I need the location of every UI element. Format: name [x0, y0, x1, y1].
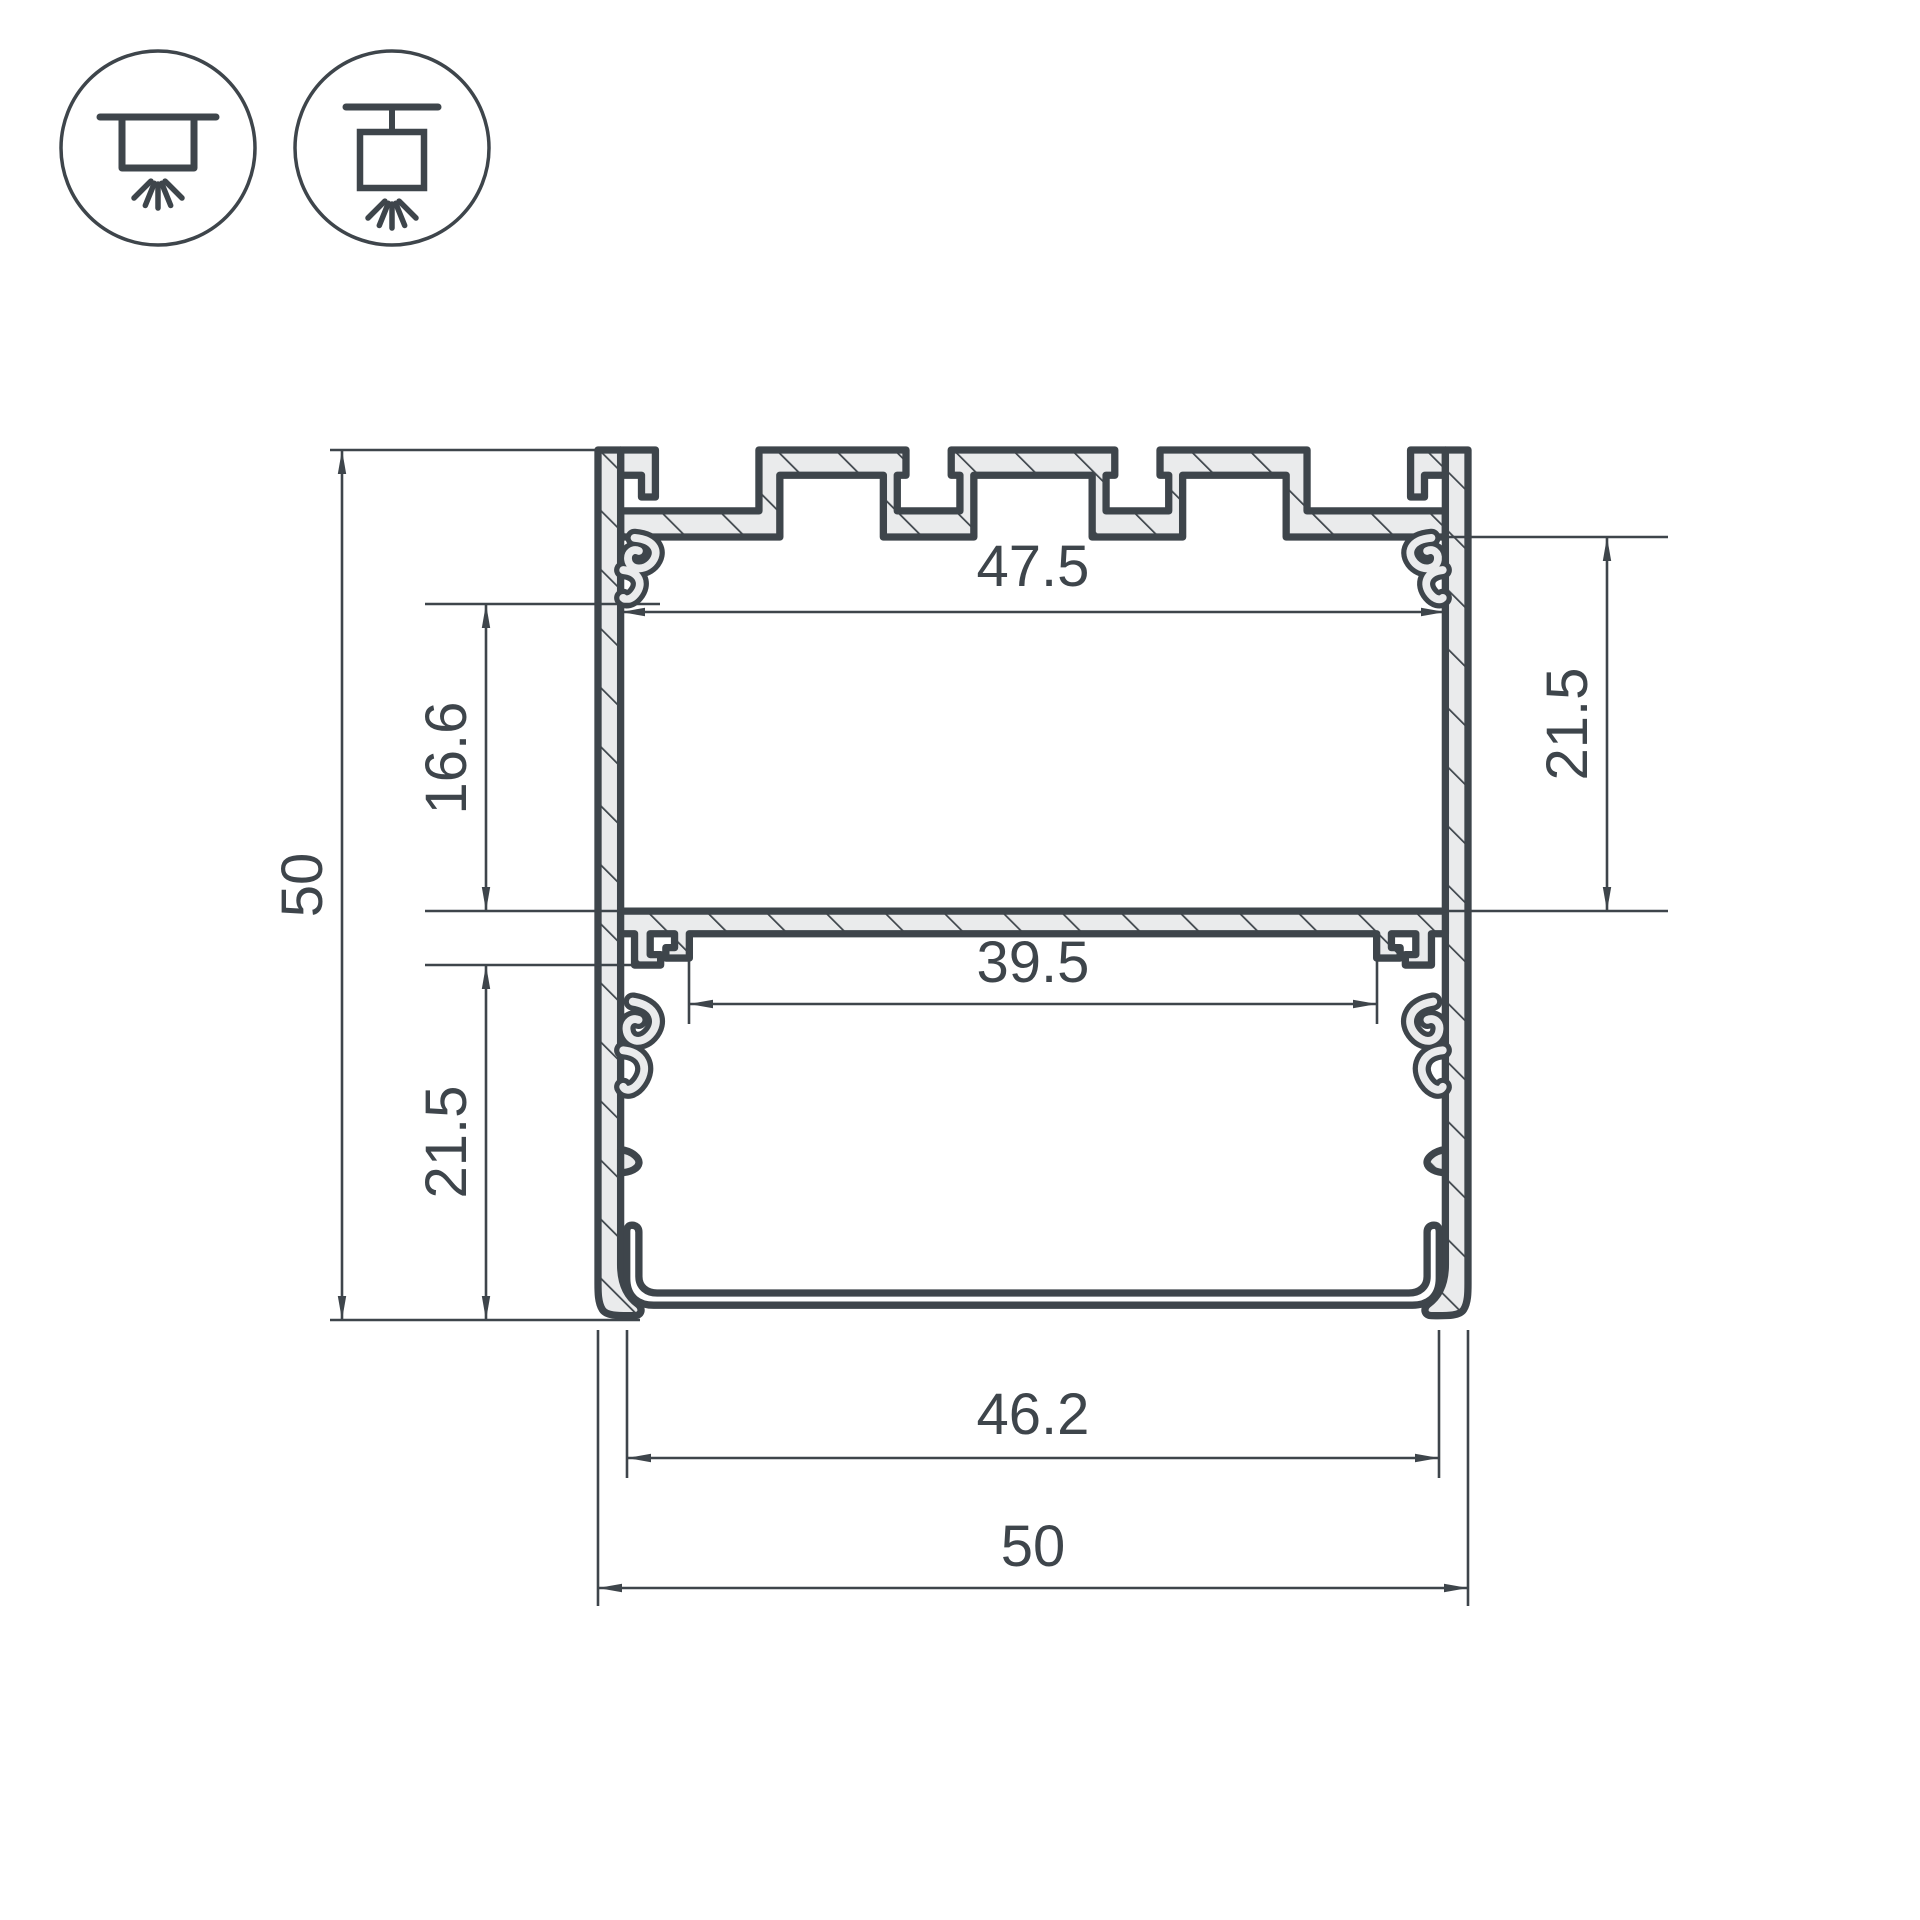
- top-right-hook-bar: [1411, 450, 1446, 497]
- profile-drawing: 50 16.6 21.5 47.5 21.5 39.5 46.2 50: [0, 0, 1920, 1920]
- dim-height-overall: 50: [270, 853, 335, 918]
- spring-clips: [623, 538, 1443, 1090]
- light-rays: [368, 201, 416, 228]
- left-diffuser-nub: [621, 1149, 639, 1172]
- dimension-labels: 50 16.6 21.5 47.5 21.5 39.5 46.2 50: [270, 534, 1600, 1579]
- dim-height-upper-inner: 16.6: [414, 702, 479, 815]
- right-diffuser-nub: [1427, 1149, 1445, 1172]
- dim-width-inner-top: 47.5: [977, 534, 1090, 599]
- profile-top-comb: [621, 450, 1446, 537]
- mount-icons: [61, 51, 489, 245]
- dim-height-lower-inner: 21.5: [414, 1086, 479, 1199]
- pendant-mount-light-icon: [295, 51, 489, 245]
- dim-width-diffuser: 46.2: [977, 1382, 1090, 1447]
- dim-width-overall: 50: [1001, 1514, 1066, 1579]
- surface-mount-light-icon: [61, 51, 255, 245]
- dim-height-right-inner: 21.5: [1535, 668, 1600, 781]
- diffuser: [627, 1225, 1440, 1305]
- dim-width-shelf-slot: 39.5: [977, 930, 1090, 995]
- light-rays: [134, 181, 182, 208]
- top-left-hook-bar: [621, 450, 656, 497]
